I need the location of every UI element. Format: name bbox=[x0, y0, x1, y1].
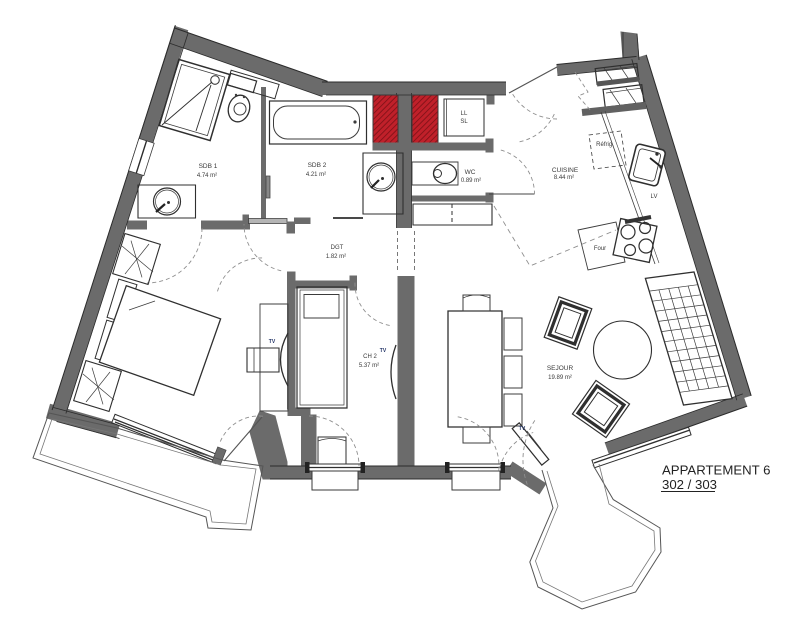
svg-text:SL: SL bbox=[460, 119, 468, 125]
svg-text:APPARTEMENT 6: APPARTEMENT 6 bbox=[662, 463, 770, 478]
svg-text:LL: LL bbox=[461, 111, 468, 117]
svg-text:TV: TV bbox=[380, 348, 387, 354]
svg-text:DGT: DGT bbox=[331, 245, 344, 251]
svg-text:302 / 303: 302 / 303 bbox=[662, 477, 717, 492]
svg-text:0.89 m²: 0.89 m² bbox=[461, 178, 481, 184]
svg-text:4.21 m²: 4.21 m² bbox=[306, 172, 326, 178]
svg-text:Réfrig.: Réfrig. bbox=[596, 142, 614, 148]
svg-text:WC: WC bbox=[465, 169, 476, 176]
svg-text:SDB 2: SDB 2 bbox=[308, 162, 327, 169]
svg-text:1.82 m²: 1.82 m² bbox=[326, 254, 346, 260]
svg-text:CUISINE: CUISINE bbox=[552, 167, 579, 174]
svg-text:SDB 1: SDB 1 bbox=[199, 163, 218, 170]
svg-text:TV: TV bbox=[519, 426, 526, 432]
svg-text:CH 2: CH 2 bbox=[363, 354, 377, 360]
svg-text:5.37 m²: 5.37 m² bbox=[359, 363, 379, 369]
svg-text:Four: Four bbox=[594, 246, 606, 252]
svg-text:SEJOUR: SEJOUR bbox=[547, 365, 574, 372]
svg-text:19.89 m²: 19.89 m² bbox=[548, 375, 572, 381]
svg-text:4.74 m²: 4.74 m² bbox=[197, 173, 217, 179]
svg-text:LV: LV bbox=[651, 194, 658, 200]
svg-text:8.44 m²: 8.44 m² bbox=[554, 175, 574, 181]
svg-text:TV: TV bbox=[269, 339, 276, 345]
